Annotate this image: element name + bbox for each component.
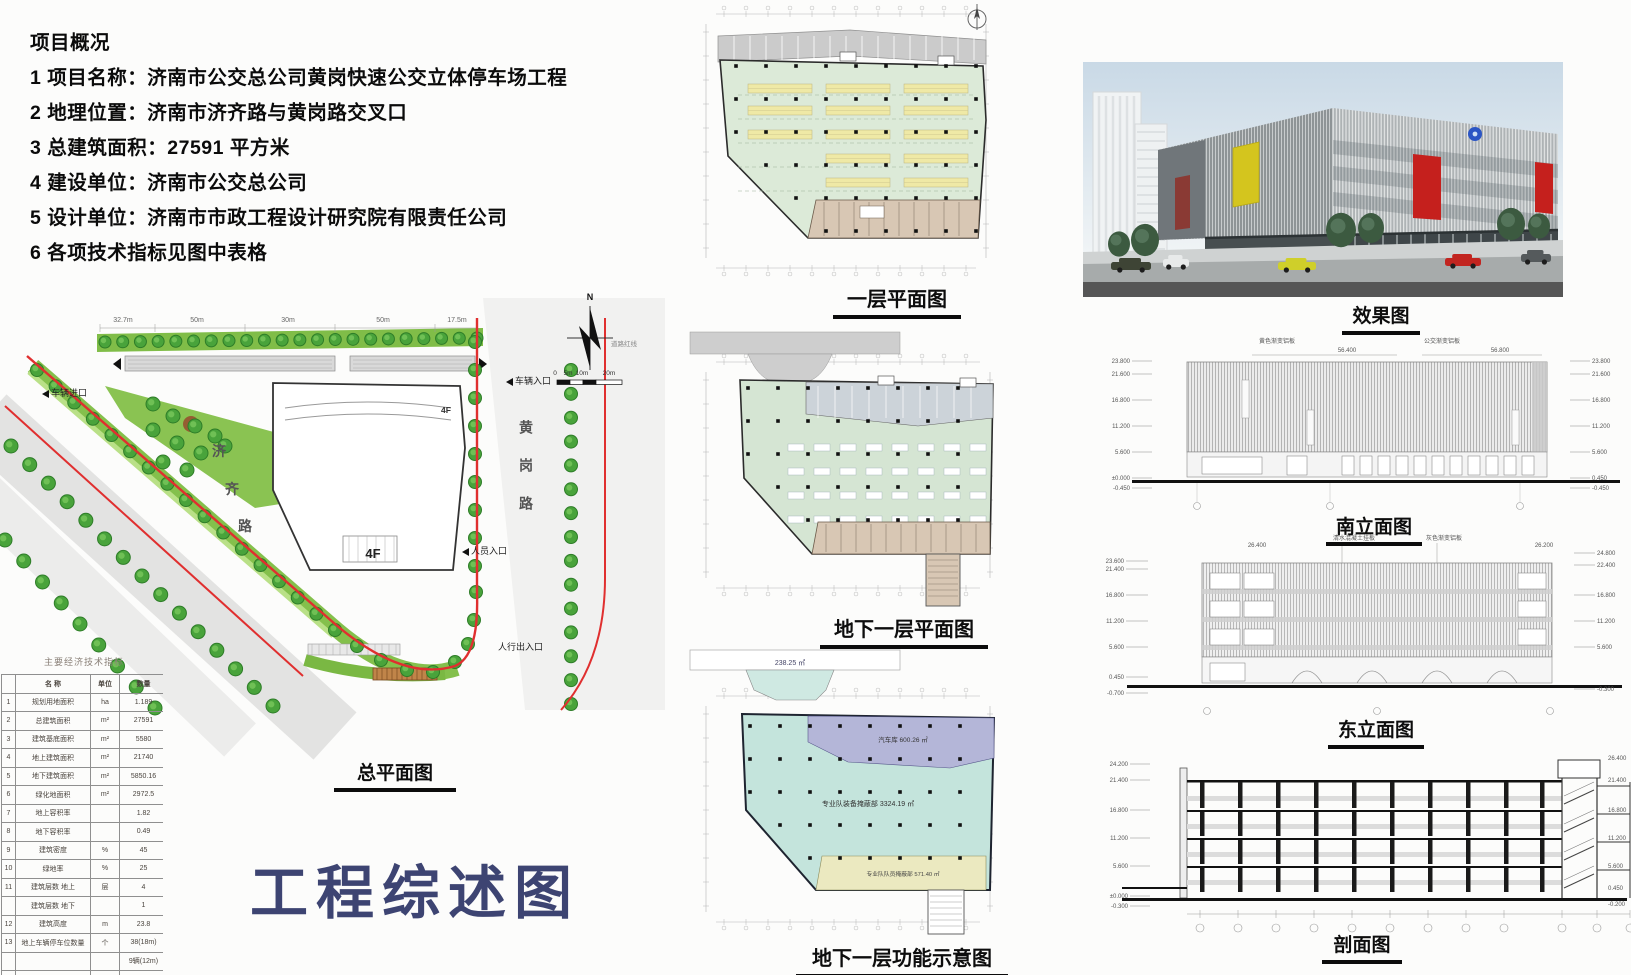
svg-text:5.600: 5.600: [1608, 864, 1624, 870]
overview-line-1: 1 项目名称：济南市公交总公司黄岗快速公交立体停车场工程: [30, 61, 567, 96]
road-label-jiqi-char3: 路: [238, 516, 252, 536]
svg-text:-0.700: -0.700: [1107, 691, 1125, 697]
table-row: 9建筑密度%45: [2, 841, 164, 860]
svg-text:16.800: 16.800: [1112, 398, 1131, 404]
table-row: 14地下车辆停车位数量个26(12m): [2, 971, 164, 975]
svg-text:50m: 50m: [376, 317, 390, 324]
south-elevation-caption: 南立面图: [1326, 512, 1422, 546]
render-image: [1083, 62, 1563, 297]
arrow-icon: [506, 378, 513, 386]
svg-text:11.200: 11.200: [1110, 836, 1129, 842]
svg-text:5m: 5m: [563, 370, 572, 377]
svg-text:0.450: 0.450: [1608, 886, 1624, 892]
table-row: 8地下容积率0.49: [2, 823, 164, 842]
svg-text:23.800: 23.800: [1112, 359, 1131, 365]
svg-text:21.600: 21.600: [1592, 372, 1611, 378]
svg-text:23.800: 23.800: [1592, 359, 1611, 365]
table-row: 7地上容积率1.82: [2, 804, 164, 823]
svg-text:专业队队员掩蔽部 571.40 ㎡: 专业队队员掩蔽部 571.40 ㎡: [866, 870, 939, 878]
svg-text:0.450: 0.450: [1109, 675, 1125, 681]
render-caption: 效果图: [1342, 301, 1420, 335]
svg-text:11.200: 11.200: [1106, 619, 1125, 625]
table-row: 2总建筑面积m²27591: [2, 712, 164, 731]
table-row: 11建筑层数 地上层4: [2, 878, 164, 897]
svg-text:17.5m: 17.5m: [447, 317, 467, 324]
svg-text:4F: 4F: [365, 546, 380, 561]
table-row: 6绿化地面积m²2972.5: [2, 786, 164, 805]
first-floor-plan-drawing: [690, 0, 1000, 282]
svg-text:22.400: 22.400: [1597, 563, 1616, 569]
svg-text:5.600: 5.600: [1109, 645, 1125, 651]
table-row: 12建筑高度m23.8: [2, 915, 164, 934]
south-elevation-drawing: 黄色渐变铝板56.400公交渐变铝板56.80023.80021.60016.8…: [1092, 330, 1631, 515]
table-row: 3建筑基底面积m²5580: [2, 730, 164, 749]
svg-text:11.200: 11.200: [1112, 424, 1131, 430]
indicator-table: 名 称单位数量 1规划用地面积ha1.1892总建筑面积m²275913建筑基底…: [1, 674, 163, 975]
svg-text:26.400: 26.400: [1608, 756, 1627, 762]
east-elevation-caption: 东立面图: [1328, 715, 1424, 749]
basement-function-drawing: 238.25 ㎡汽车库 600.26 ㎡专业队队员掩蔽部 571.40 ㎡专业队…: [688, 638, 1003, 940]
table-row: 13地上车辆停车位数量个38(18m): [2, 934, 164, 953]
svg-text:N: N: [587, 292, 594, 302]
overview-line-4: 4 建设单位：济南市公交总公司: [30, 166, 567, 201]
anno-person-entry: 人员入口: [462, 544, 507, 557]
first-floor-caption: 一层平面图: [833, 283, 961, 319]
svg-text:11.200: 11.200: [1597, 619, 1616, 625]
overview-line-2: 2 地理位置：济南市济齐路与黄岗路交叉口: [30, 96, 567, 131]
svg-text:21.400: 21.400: [1106, 567, 1125, 573]
svg-text:汽车库 600.26 ㎡: 汽车库 600.26 ㎡: [878, 735, 928, 744]
svg-text:16.800: 16.800: [1597, 593, 1616, 599]
road-label-jiqi-char1: 济: [212, 441, 226, 461]
anno-person-exit: 人行出入口: [498, 640, 543, 653]
caption-underline: [1342, 331, 1420, 335]
svg-text:16.800: 16.800: [1106, 593, 1125, 599]
svg-text:11.200: 11.200: [1608, 836, 1627, 842]
arrow-icon: [462, 548, 469, 556]
svg-text:21.400: 21.400: [1608, 778, 1627, 784]
overview-heading: 项目概况: [30, 26, 567, 61]
svg-text:16.800: 16.800: [1110, 808, 1129, 814]
overview-line-6: 6 各项技术指标见图中表格: [30, 236, 567, 271]
basement-caption: 地下一层平面图: [820, 613, 988, 649]
table-row: 4地上建筑面积m²21740: [2, 749, 164, 768]
svg-text:-0.450: -0.450: [1592, 486, 1610, 492]
svg-text:黄色渐变铝板: 黄色渐变铝板: [1259, 337, 1295, 345]
svg-text:±0.000: ±0.000: [1112, 476, 1131, 482]
arrow-icon: [42, 390, 49, 398]
drawing-sheet: 项目概况 1 项目名称：济南市公交总公司黄岗快速公交立体停车场工程 2 地理位置…: [0, 0, 1631, 975]
east-elevation-drawing: 26.400清水混凝土挂板灰色渐变铝板26.20023.60021.40016.…: [1092, 525, 1631, 735]
table-row: 10绿地率%25: [2, 860, 164, 879]
site-plan-drawing: 32.7m50m30m50m17.5m4F4F道路红线N05m10m20m: [5, 278, 665, 710]
caption-underline: [820, 645, 988, 649]
basement-plan-drawing: [688, 316, 1003, 612]
svg-text:30m: 30m: [281, 317, 295, 324]
road-label-huanggang: 黄岗路: [516, 420, 536, 534]
project-overview: 项目概况 1 项目名称：济南市公交总公司黄岗快速公交立体停车场工程 2 地理位置…: [30, 26, 567, 271]
svg-text:-0.200: -0.200: [1608, 902, 1626, 908]
svg-text:20m: 20m: [603, 370, 616, 377]
table-row: 1规划用地面积ha1.189: [2, 693, 164, 712]
svg-text:道路红线: 道路红线: [611, 339, 638, 348]
svg-text:16.800: 16.800: [1592, 398, 1611, 404]
svg-text:24.800: 24.800: [1597, 551, 1616, 557]
svg-text:-0.450: -0.450: [1113, 486, 1131, 492]
svg-text:21.400: 21.400: [1110, 778, 1129, 784]
section-caption: 剖面图: [1322, 930, 1402, 964]
caption-underline: [833, 315, 961, 319]
svg-text:5.600: 5.600: [1115, 450, 1131, 456]
table-row: 5地下建筑面积m²5850.16: [2, 767, 164, 786]
indicator-table-block: 主要经济技术指标 名 称单位数量 1规划用地面积ha1.1892总建筑面积m²2…: [1, 655, 163, 975]
caption-underline: [1328, 745, 1424, 749]
svg-text:5.600: 5.600: [1597, 645, 1613, 651]
svg-text:4F: 4F: [441, 405, 451, 415]
anno-vehicle-entry-left: 车辆进口: [42, 386, 87, 399]
svg-text:56.400: 56.400: [1338, 348, 1357, 354]
road-label-jiqi-char2: 齐: [225, 479, 239, 499]
sheet-title: 工程综述图: [250, 846, 580, 930]
svg-text:26.400: 26.400: [1248, 543, 1267, 549]
svg-text:11.200: 11.200: [1592, 424, 1611, 430]
svg-text:0: 0: [553, 370, 557, 377]
overview-line-5: 5 设计单位：济南市市政工程设计研究院有限责任公司: [30, 201, 567, 236]
svg-text:0.450: 0.450: [1592, 476, 1608, 482]
caption-underline: [1322, 960, 1402, 964]
svg-text:5.600: 5.600: [1592, 450, 1608, 456]
svg-text:21.600: 21.600: [1112, 372, 1131, 378]
svg-text:26.200: 26.200: [1535, 543, 1554, 549]
svg-text:238.25 ㎡: 238.25 ㎡: [775, 659, 805, 667]
table-header-row: 名 称单位数量: [2, 675, 164, 694]
svg-text:50m: 50m: [190, 317, 204, 324]
section-drawing: 24.20021.40016.80011.2005.600±0.000-0.30…: [1092, 738, 1631, 938]
anno-vehicle-entry-right: 车辆入口: [506, 374, 551, 387]
svg-text:16.800: 16.800: [1608, 808, 1627, 814]
caption-underline: [1326, 542, 1422, 546]
indicator-table-title: 主要经济技术指标: [9, 655, 159, 668]
site-plan-caption: 总平面图: [334, 758, 456, 792]
svg-text:-0.300: -0.300: [1597, 687, 1615, 693]
basement-function-caption: 地下一层功能示意图: [796, 942, 1008, 975]
svg-text:灰色渐变铝板: 灰色渐变铝板: [1426, 534, 1462, 542]
svg-text:-0.300: -0.300: [1111, 904, 1129, 910]
svg-text:24.200: 24.200: [1110, 762, 1129, 768]
table-row: 9辆(12m): [2, 952, 164, 971]
overview-line-3: 3 总建筑面积：27591 平方米: [30, 131, 567, 166]
svg-text:±0.000: ±0.000: [1110, 894, 1129, 900]
svg-text:32.7m: 32.7m: [113, 317, 133, 324]
table-row: 建筑层数 地下1: [2, 897, 164, 916]
svg-text:专业队装备掩蔽部 3324.19 ㎡: 专业队装备掩蔽部 3324.19 ㎡: [822, 799, 914, 808]
svg-text:10m: 10m: [576, 370, 589, 377]
caption-underline: [334, 788, 456, 792]
svg-text:23.600: 23.600: [1106, 559, 1125, 565]
svg-text:5.600: 5.600: [1113, 864, 1129, 870]
svg-text:公交渐变铝板: 公交渐变铝板: [1424, 337, 1460, 345]
svg-text:56.800: 56.800: [1491, 348, 1510, 354]
